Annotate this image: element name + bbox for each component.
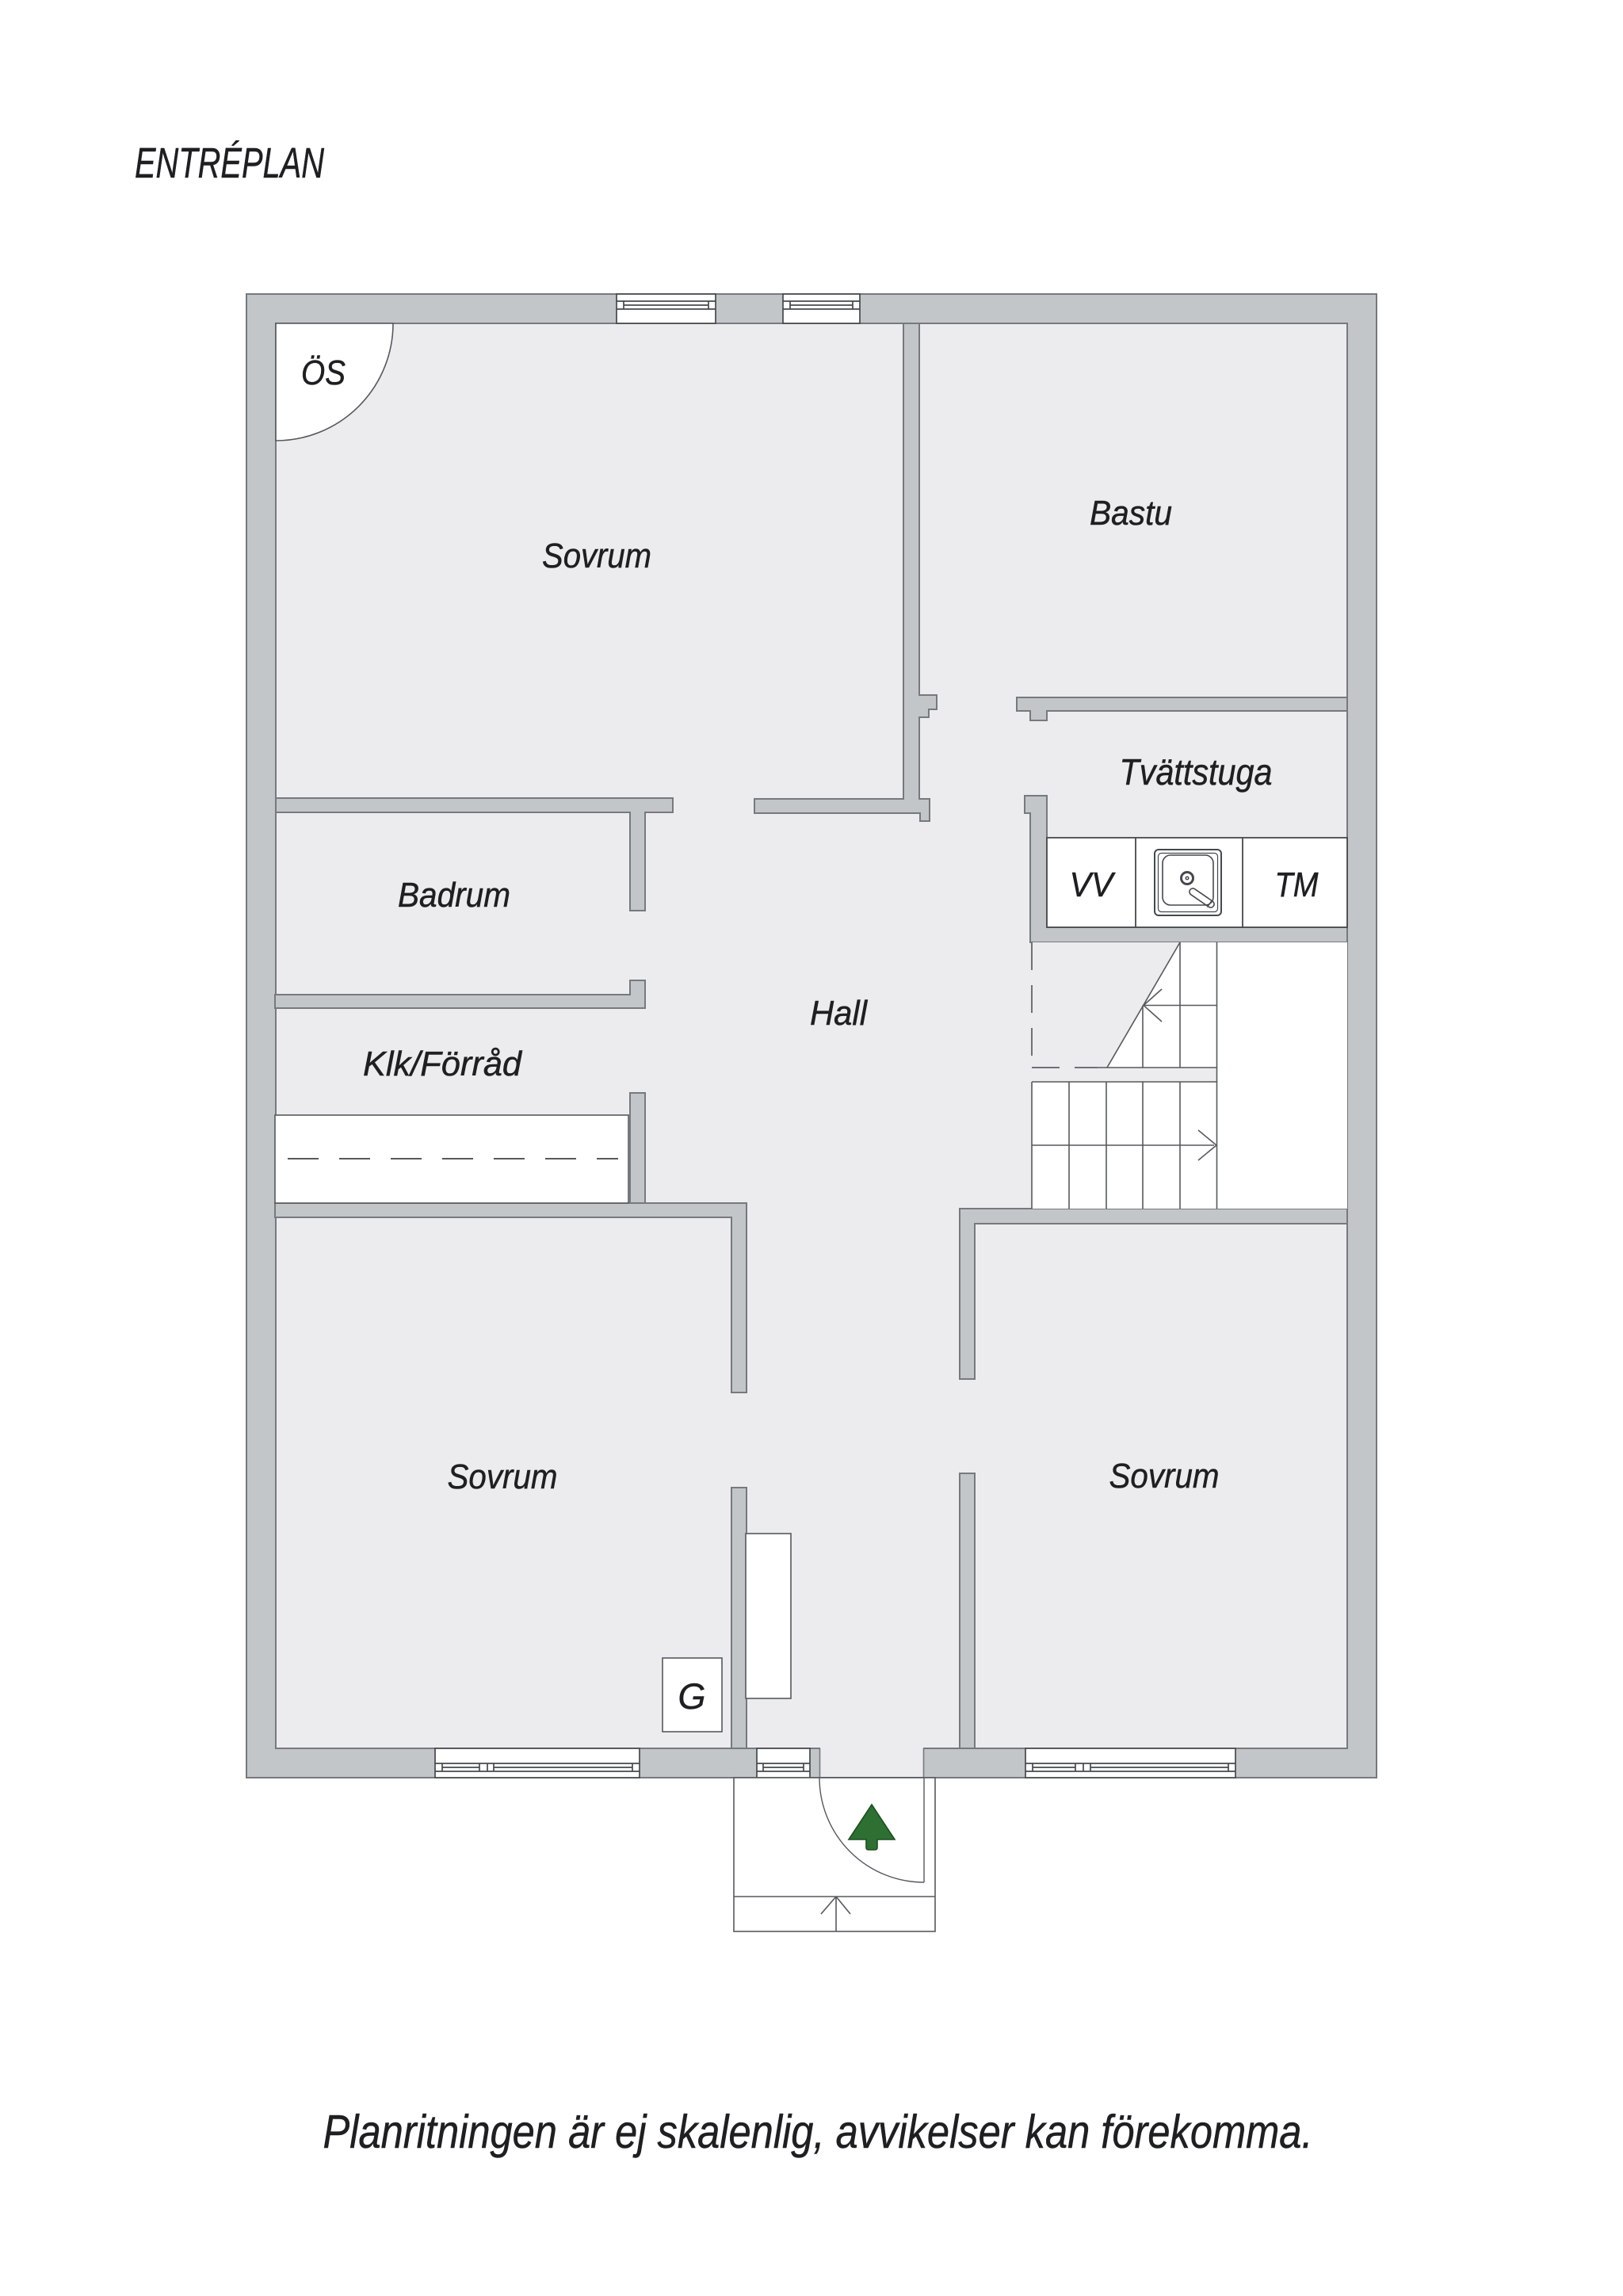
svg-text:Hall: Hall xyxy=(810,994,868,1033)
svg-text:TM: TM xyxy=(1275,865,1319,904)
svg-text:ENTRÉPLAN: ENTRÉPLAN xyxy=(135,139,325,187)
svg-text:ÖS: ÖS xyxy=(301,353,346,392)
svg-text:Sovrum: Sovrum xyxy=(1109,1457,1220,1496)
svg-text:Klk/Förråd: Klk/Förråd xyxy=(363,1045,522,1083)
svg-text:Badrum: Badrum xyxy=(398,876,510,915)
svg-text:Sovrum: Sovrum xyxy=(448,1457,558,1496)
svg-text:Bastu: Bastu xyxy=(1090,494,1172,533)
svg-text:Tvättstuga: Tvättstuga xyxy=(1120,751,1273,793)
svg-text:Planritningen är ej skalenlig,: Planritningen är ej skalenlig, avvikelse… xyxy=(323,2106,1313,2158)
svg-text:Sovrum: Sovrum xyxy=(542,537,651,575)
svg-text:VV: VV xyxy=(1070,865,1116,904)
svg-text:G: G xyxy=(678,1676,705,1717)
